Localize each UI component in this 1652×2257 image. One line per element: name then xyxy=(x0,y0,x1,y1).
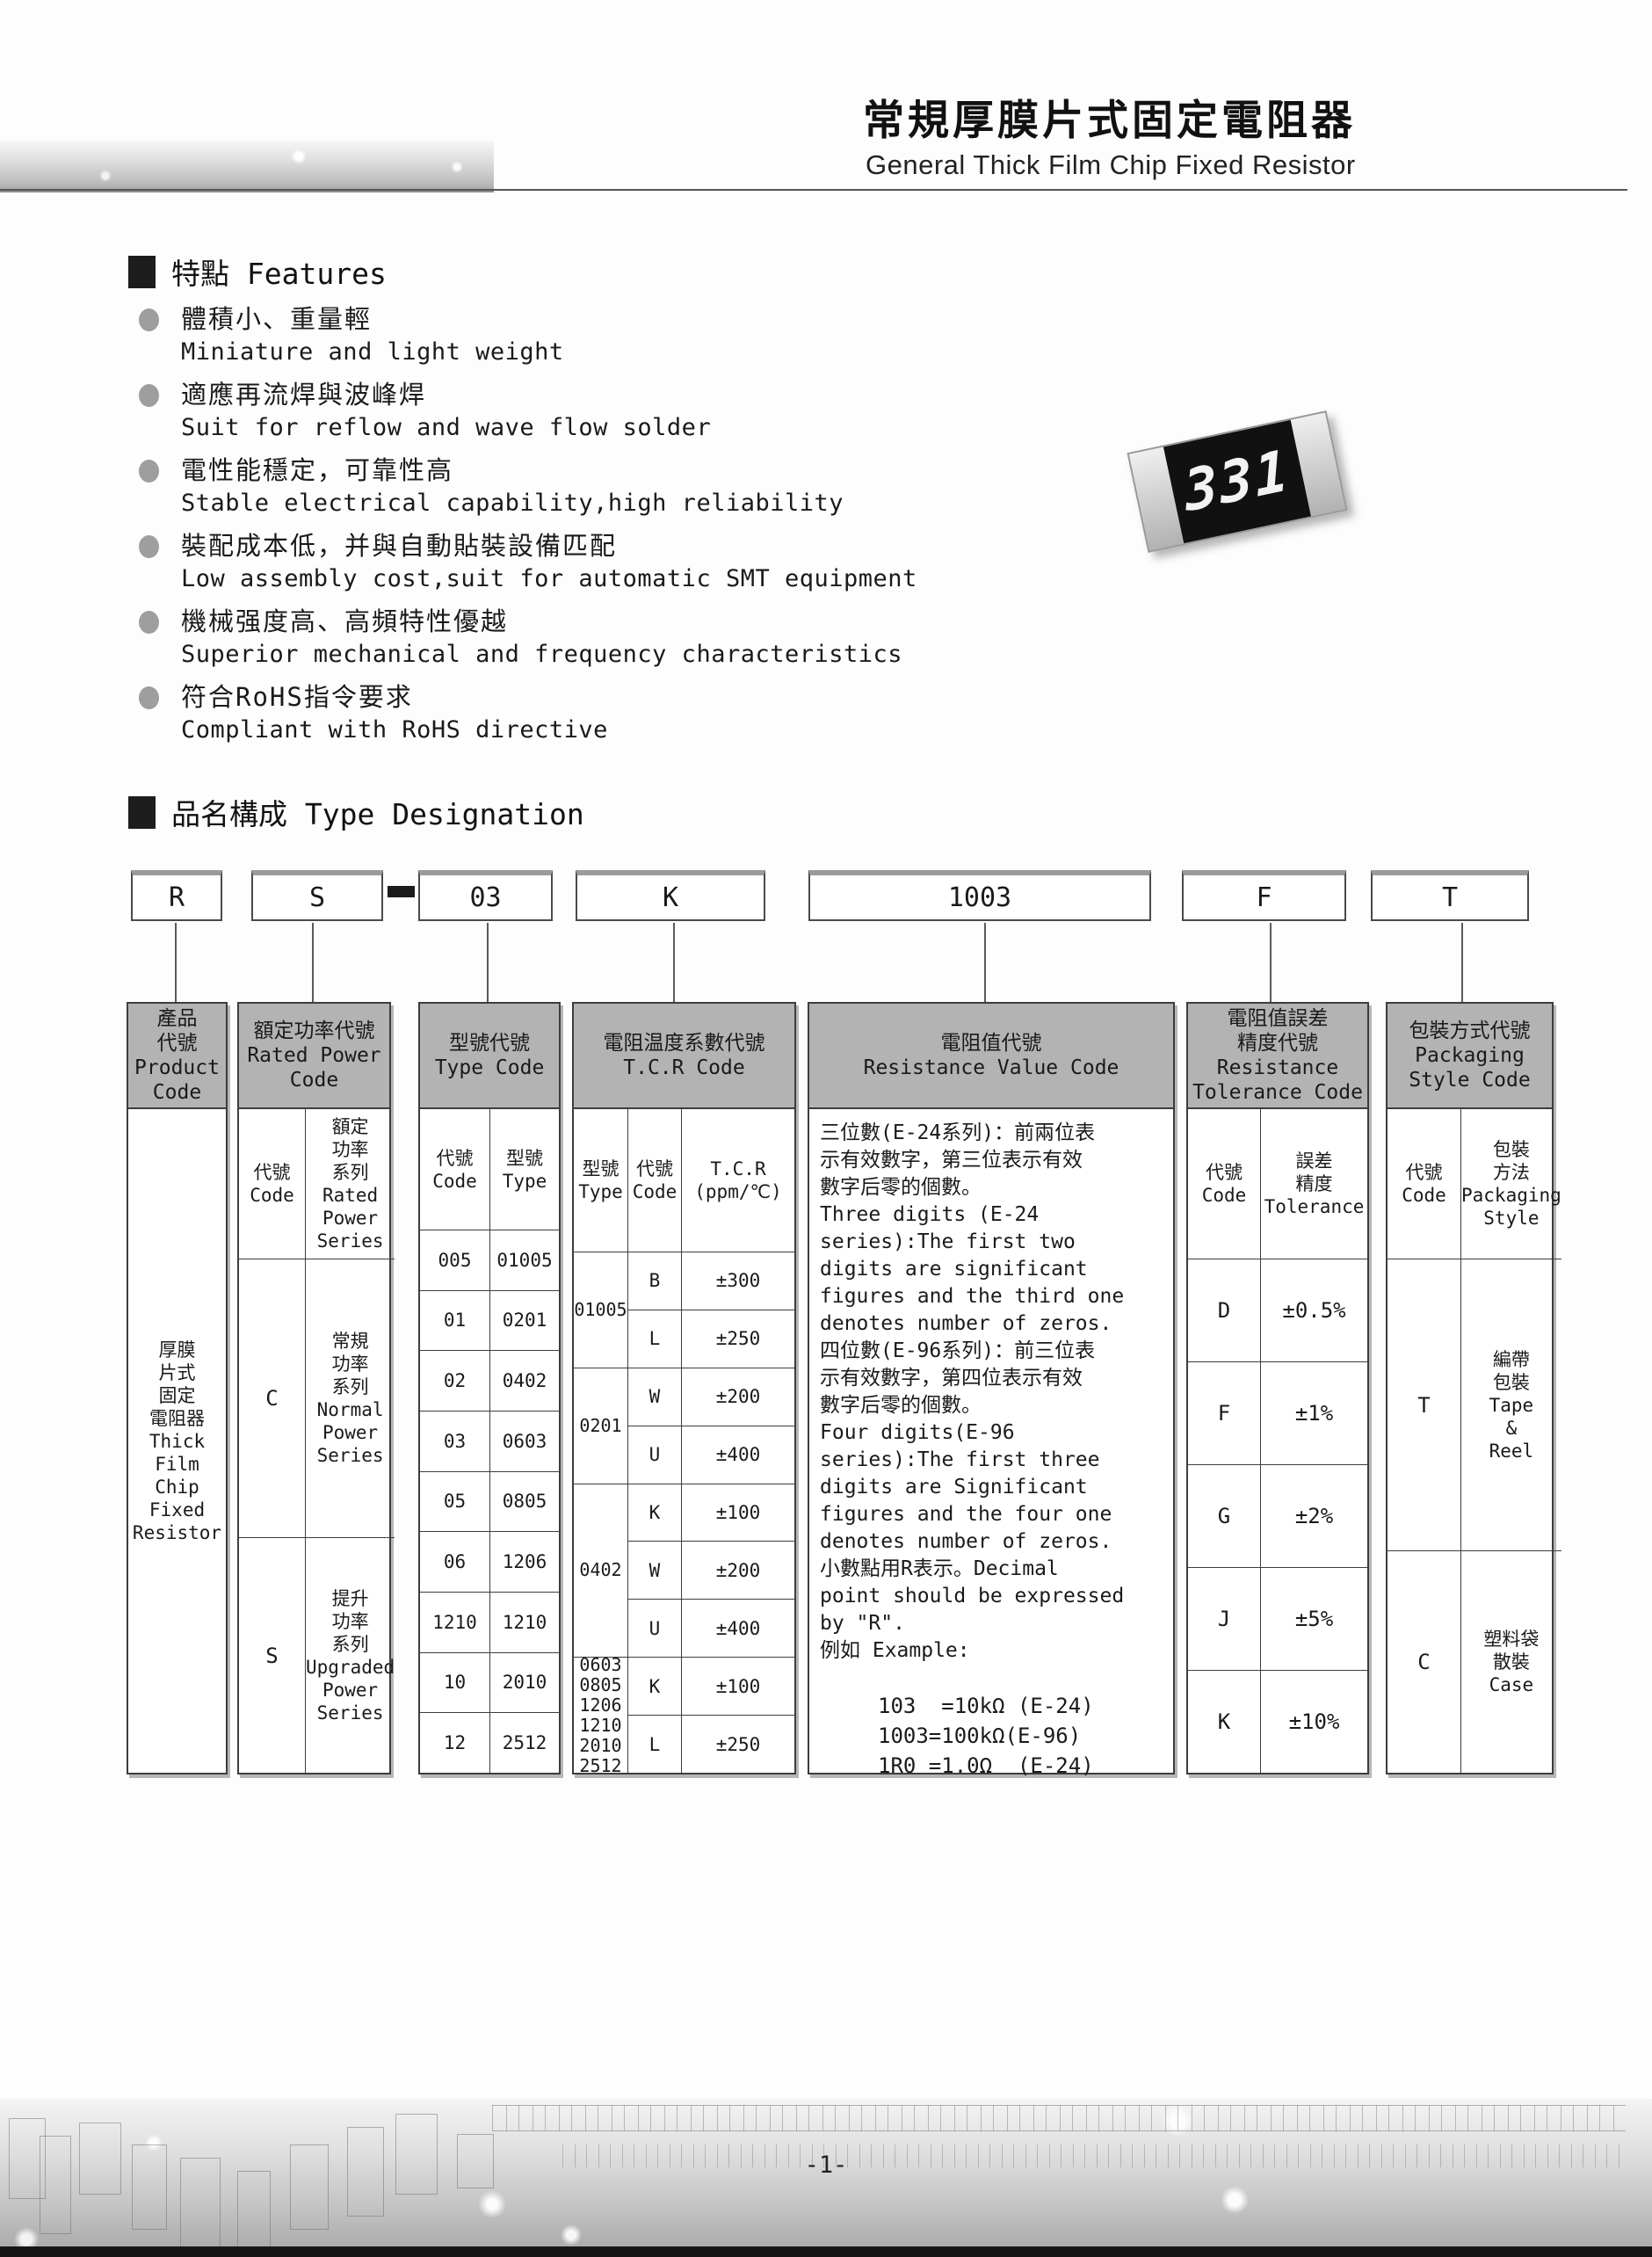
list-item: 裝配成本低，并與自動貼裝設備匹配 Low assembly cost,suit … xyxy=(128,530,1095,596)
power-series: 常規 功率 系列 Normal Power Series xyxy=(305,1259,395,1537)
code-box-product: R xyxy=(131,870,222,921)
features-list: 體積小、重量輕 Miniature and light weight 適應再流焊… xyxy=(128,303,1095,757)
type-code: 12 xyxy=(420,1712,489,1773)
type-size: 0603 xyxy=(489,1411,559,1471)
bullet-icon xyxy=(139,686,159,709)
list-item: 符合RoHS指令要求 Compliant with RoHS directive xyxy=(128,681,1095,747)
page-number: -1- xyxy=(0,2152,1652,2179)
tolerance-value: ±5% xyxy=(1260,1567,1367,1670)
col-header-power: 額定功率代號 Rated Power Code xyxy=(239,1004,389,1109)
type-code: 005 xyxy=(420,1230,489,1290)
footer-decoration xyxy=(40,2136,71,2234)
bullet-icon xyxy=(139,308,159,331)
section-square-icon xyxy=(128,796,156,829)
type-code: 02 xyxy=(420,1350,489,1411)
bullet-icon xyxy=(139,460,159,483)
feature-cn: 符合RoHS指令要求 xyxy=(181,681,1095,714)
type-type-label: 型號 Type xyxy=(489,1109,559,1230)
type-size: 1206 xyxy=(489,1531,559,1592)
tcr-code-label: 代號 Code xyxy=(627,1109,681,1252)
packaging-code: C xyxy=(1388,1550,1460,1773)
tcr-group-type: 0201 xyxy=(574,1368,627,1484)
col-header-type: 型號代號 Type Code xyxy=(420,1004,559,1109)
tcr-code: L xyxy=(627,1715,681,1773)
power-code-label: 代號 Code xyxy=(239,1109,305,1259)
table-col-packaging: 包裝方式代號 Packaging Style Code 代號 Code 包裝 方… xyxy=(1386,1002,1554,1774)
features-heading-label: 特點 Features xyxy=(171,250,387,293)
connector-line xyxy=(487,923,489,1002)
type-code: 06 xyxy=(420,1531,489,1592)
section-square-icon xyxy=(128,256,156,288)
list-item: 體積小、重量輕 Miniature and light weight xyxy=(128,303,1095,369)
resistance-description: 三位數(E-24系列)：前兩位表 示有效數字，第三位表示有效 數字后零的個數。 … xyxy=(820,1120,1164,1665)
features-heading: 特點 Features xyxy=(128,250,387,293)
designation-heading-label: 品名構成 Type Designation xyxy=(171,791,584,833)
packaging-code-label: 代號 Code xyxy=(1388,1109,1460,1259)
header-gradient-band xyxy=(0,141,494,192)
tcr-value-label: T.C.R (ppm/℃) xyxy=(681,1109,794,1252)
packaging-style-label: 包裝 方法 Packaging Style xyxy=(1460,1109,1561,1259)
table-col-type: 型號代號 Type Code 代號 Code 型號 Type 005 01005… xyxy=(418,1002,561,1774)
tcr-code: B xyxy=(627,1252,681,1310)
type-code: 03 xyxy=(420,1411,489,1471)
tcr-value: ±200 xyxy=(681,1541,794,1599)
tolerance-label: 誤差 精度 Tolerance xyxy=(1260,1109,1367,1259)
tcr-value: ±200 xyxy=(681,1368,794,1426)
table-col-tcr: 電阻温度系數代號 T.C.R Code 型號 Type 代號 Code T.C.… xyxy=(572,1002,796,1774)
resistance-examples: 103 =10kΩ (E-24) 1003=100kΩ(E-96) 1R0 =1… xyxy=(878,1691,1164,1781)
col-header-resistance: 電阻值代號 Resistance Value Code xyxy=(809,1004,1173,1109)
tolerance-code: K xyxy=(1188,1670,1260,1773)
footer-decoration xyxy=(237,2171,271,2247)
tcr-group-type: 0402 xyxy=(574,1484,627,1658)
bullet-icon xyxy=(139,611,159,634)
feature-cn: 電性能穩定，可靠性高 xyxy=(181,454,1095,487)
page-bottom-bar xyxy=(0,2246,1652,2257)
table-col-product: 產品 代號 Product Code 厚膜 片式 固定 電阻器 Thick Fi… xyxy=(127,1002,228,1774)
connector-line xyxy=(312,923,314,1002)
code-box-resistance: 1003 xyxy=(808,870,1151,921)
type-code: 10 xyxy=(420,1652,489,1713)
col-header-tolerance: 電阻值誤差 精度代號 Resistance Tolerance Code xyxy=(1188,1004,1367,1109)
power-series: 提升 功率 系列 Upgraded Power Series xyxy=(305,1537,395,1773)
code-box-power: S xyxy=(251,870,383,921)
tcr-code: K xyxy=(627,1484,681,1542)
chip-body: 331 xyxy=(1163,420,1311,543)
designation-dash xyxy=(388,886,415,897)
tolerance-code-label: 代號 Code xyxy=(1188,1109,1260,1259)
feature-cn: 體積小、重量輕 xyxy=(181,303,1095,336)
tcr-value: ±100 xyxy=(681,1657,794,1715)
tcr-value: ±250 xyxy=(681,1715,794,1773)
tolerance-code: G xyxy=(1188,1464,1260,1567)
bullet-icon xyxy=(139,384,159,407)
chip-resistor: 331 xyxy=(1127,410,1347,553)
type-size: 2512 xyxy=(489,1712,559,1773)
feature-en: Compliant with RoHS directive xyxy=(181,714,1095,747)
tolerance-value: ±2% xyxy=(1260,1464,1367,1567)
tolerance-code: J xyxy=(1188,1567,1260,1670)
col-header-product: 產品 代號 Product Code xyxy=(128,1004,226,1109)
resistor-photo: 331 xyxy=(1127,406,1346,564)
list-item: 電性能穩定，可靠性高 Stable electrical capability,… xyxy=(128,454,1095,520)
designation-heading: 品名構成 Type Designation xyxy=(128,791,584,833)
code-box-tcr: K xyxy=(576,870,765,921)
tcr-code: U xyxy=(627,1426,681,1484)
connector-line xyxy=(1270,923,1272,1002)
tcr-value: ±400 xyxy=(681,1599,794,1657)
power-series-label: 額定 功率 系列 Rated Power Series xyxy=(305,1109,395,1259)
table-col-tolerance: 電阻值誤差 精度代號 Resistance Tolerance Code 代號 … xyxy=(1186,1002,1369,1774)
tolerance-value: ±0.5% xyxy=(1260,1259,1367,1361)
type-size: 0805 xyxy=(489,1471,559,1532)
list-item: 機械强度高、高頻特性優越 Superior mechanical and fre… xyxy=(128,606,1095,671)
list-item: 適應再流焊與波峰焊 Suit for reflow and wave flow … xyxy=(128,379,1095,445)
packaging-style: 編帶 包裝 Tape & Reel xyxy=(1460,1259,1561,1550)
tcr-group-type: 01005 xyxy=(574,1252,627,1368)
connector-line xyxy=(1461,923,1463,1002)
tolerance-code: F xyxy=(1188,1361,1260,1464)
tcr-code: L xyxy=(627,1310,681,1368)
tcr-value: ±100 xyxy=(681,1484,794,1542)
feature-cn: 裝配成本低，并與自動貼裝設備匹配 xyxy=(181,530,1095,562)
code-box-packaging: T xyxy=(1371,870,1529,921)
header-rule xyxy=(0,189,1627,191)
tcr-value: ±250 xyxy=(681,1310,794,1368)
connector-line xyxy=(984,923,986,1002)
feature-en: Superior mechanical and frequency charac… xyxy=(181,638,1095,671)
code-box-type: 03 xyxy=(418,870,553,921)
connector-line xyxy=(673,923,675,1002)
type-size: 01005 xyxy=(489,1230,559,1290)
feature-cn: 機械强度高、高頻特性優越 xyxy=(181,606,1095,638)
feature-en: Miniature and light weight xyxy=(181,336,1095,369)
table-col-resistance: 電阻值代號 Resistance Value Code 三位數(E-24系列)：… xyxy=(808,1002,1175,1774)
type-code: 01 xyxy=(420,1290,489,1351)
power-code: C xyxy=(239,1259,305,1537)
type-size: 0402 xyxy=(489,1350,559,1411)
packaging-style: 塑料袋 散裝 Case xyxy=(1460,1550,1561,1773)
page-title-en: General Thick Film Chip Fixed Resistor xyxy=(866,149,1639,181)
col-header-packaging: 包裝方式代號 Packaging Style Code xyxy=(1388,1004,1552,1109)
tolerance-code: D xyxy=(1188,1259,1260,1361)
type-code: 05 xyxy=(420,1471,489,1532)
chip-marking: 331 xyxy=(1182,438,1293,525)
table-col-power: 額定功率代號 Rated Power Code 代號 Code 額定 功率 系列… xyxy=(237,1002,391,1774)
tcr-code: W xyxy=(627,1541,681,1599)
bullet-icon xyxy=(139,535,159,558)
feature-cn: 適應再流焊與波峰焊 xyxy=(181,379,1095,411)
datasheet-page: 常規厚膜片式固定電阻器 General Thick Film Chip Fixe… xyxy=(0,0,1652,2257)
power-code: S xyxy=(239,1537,305,1773)
type-code: 1210 xyxy=(420,1592,489,1652)
tcr-code: U xyxy=(627,1599,681,1657)
feature-en: Suit for reflow and wave flow solder xyxy=(181,411,1095,445)
feature-en: Stable electrical capability,high reliab… xyxy=(181,487,1095,520)
type-size: 1210 xyxy=(489,1592,559,1652)
tolerance-value: ±10% xyxy=(1260,1670,1367,1773)
tolerance-value: ±1% xyxy=(1260,1361,1367,1464)
type-size: 2010 xyxy=(489,1652,559,1713)
product-body: 厚膜 片式 固定 電阻器 Thick Film Chip Fixed Resis… xyxy=(128,1109,226,1773)
packaging-code: T xyxy=(1388,1259,1460,1550)
tcr-value: ±400 xyxy=(681,1426,794,1484)
tcr-type-label: 型號 Type xyxy=(574,1109,627,1252)
connector-line xyxy=(175,923,177,1002)
code-box-tolerance: F xyxy=(1182,870,1346,921)
type-code-label: 代號 Code xyxy=(420,1109,489,1230)
tcr-value: ±300 xyxy=(681,1252,794,1310)
page-title-cn: 常規厚膜片式固定電阻器 xyxy=(863,86,1636,147)
tcr-code: K xyxy=(627,1657,681,1715)
feature-en: Low assembly cost,suit for automatic SMT… xyxy=(181,562,1095,596)
col-header-tcr: 電阻温度系數代號 T.C.R Code xyxy=(574,1004,794,1109)
type-size: 0201 xyxy=(489,1290,559,1351)
footer-decoration-strip xyxy=(492,2105,1626,2131)
tcr-code: W xyxy=(627,1368,681,1426)
tcr-group-type: 0603 0805 1206 1210 2010 2512 xyxy=(574,1657,627,1773)
